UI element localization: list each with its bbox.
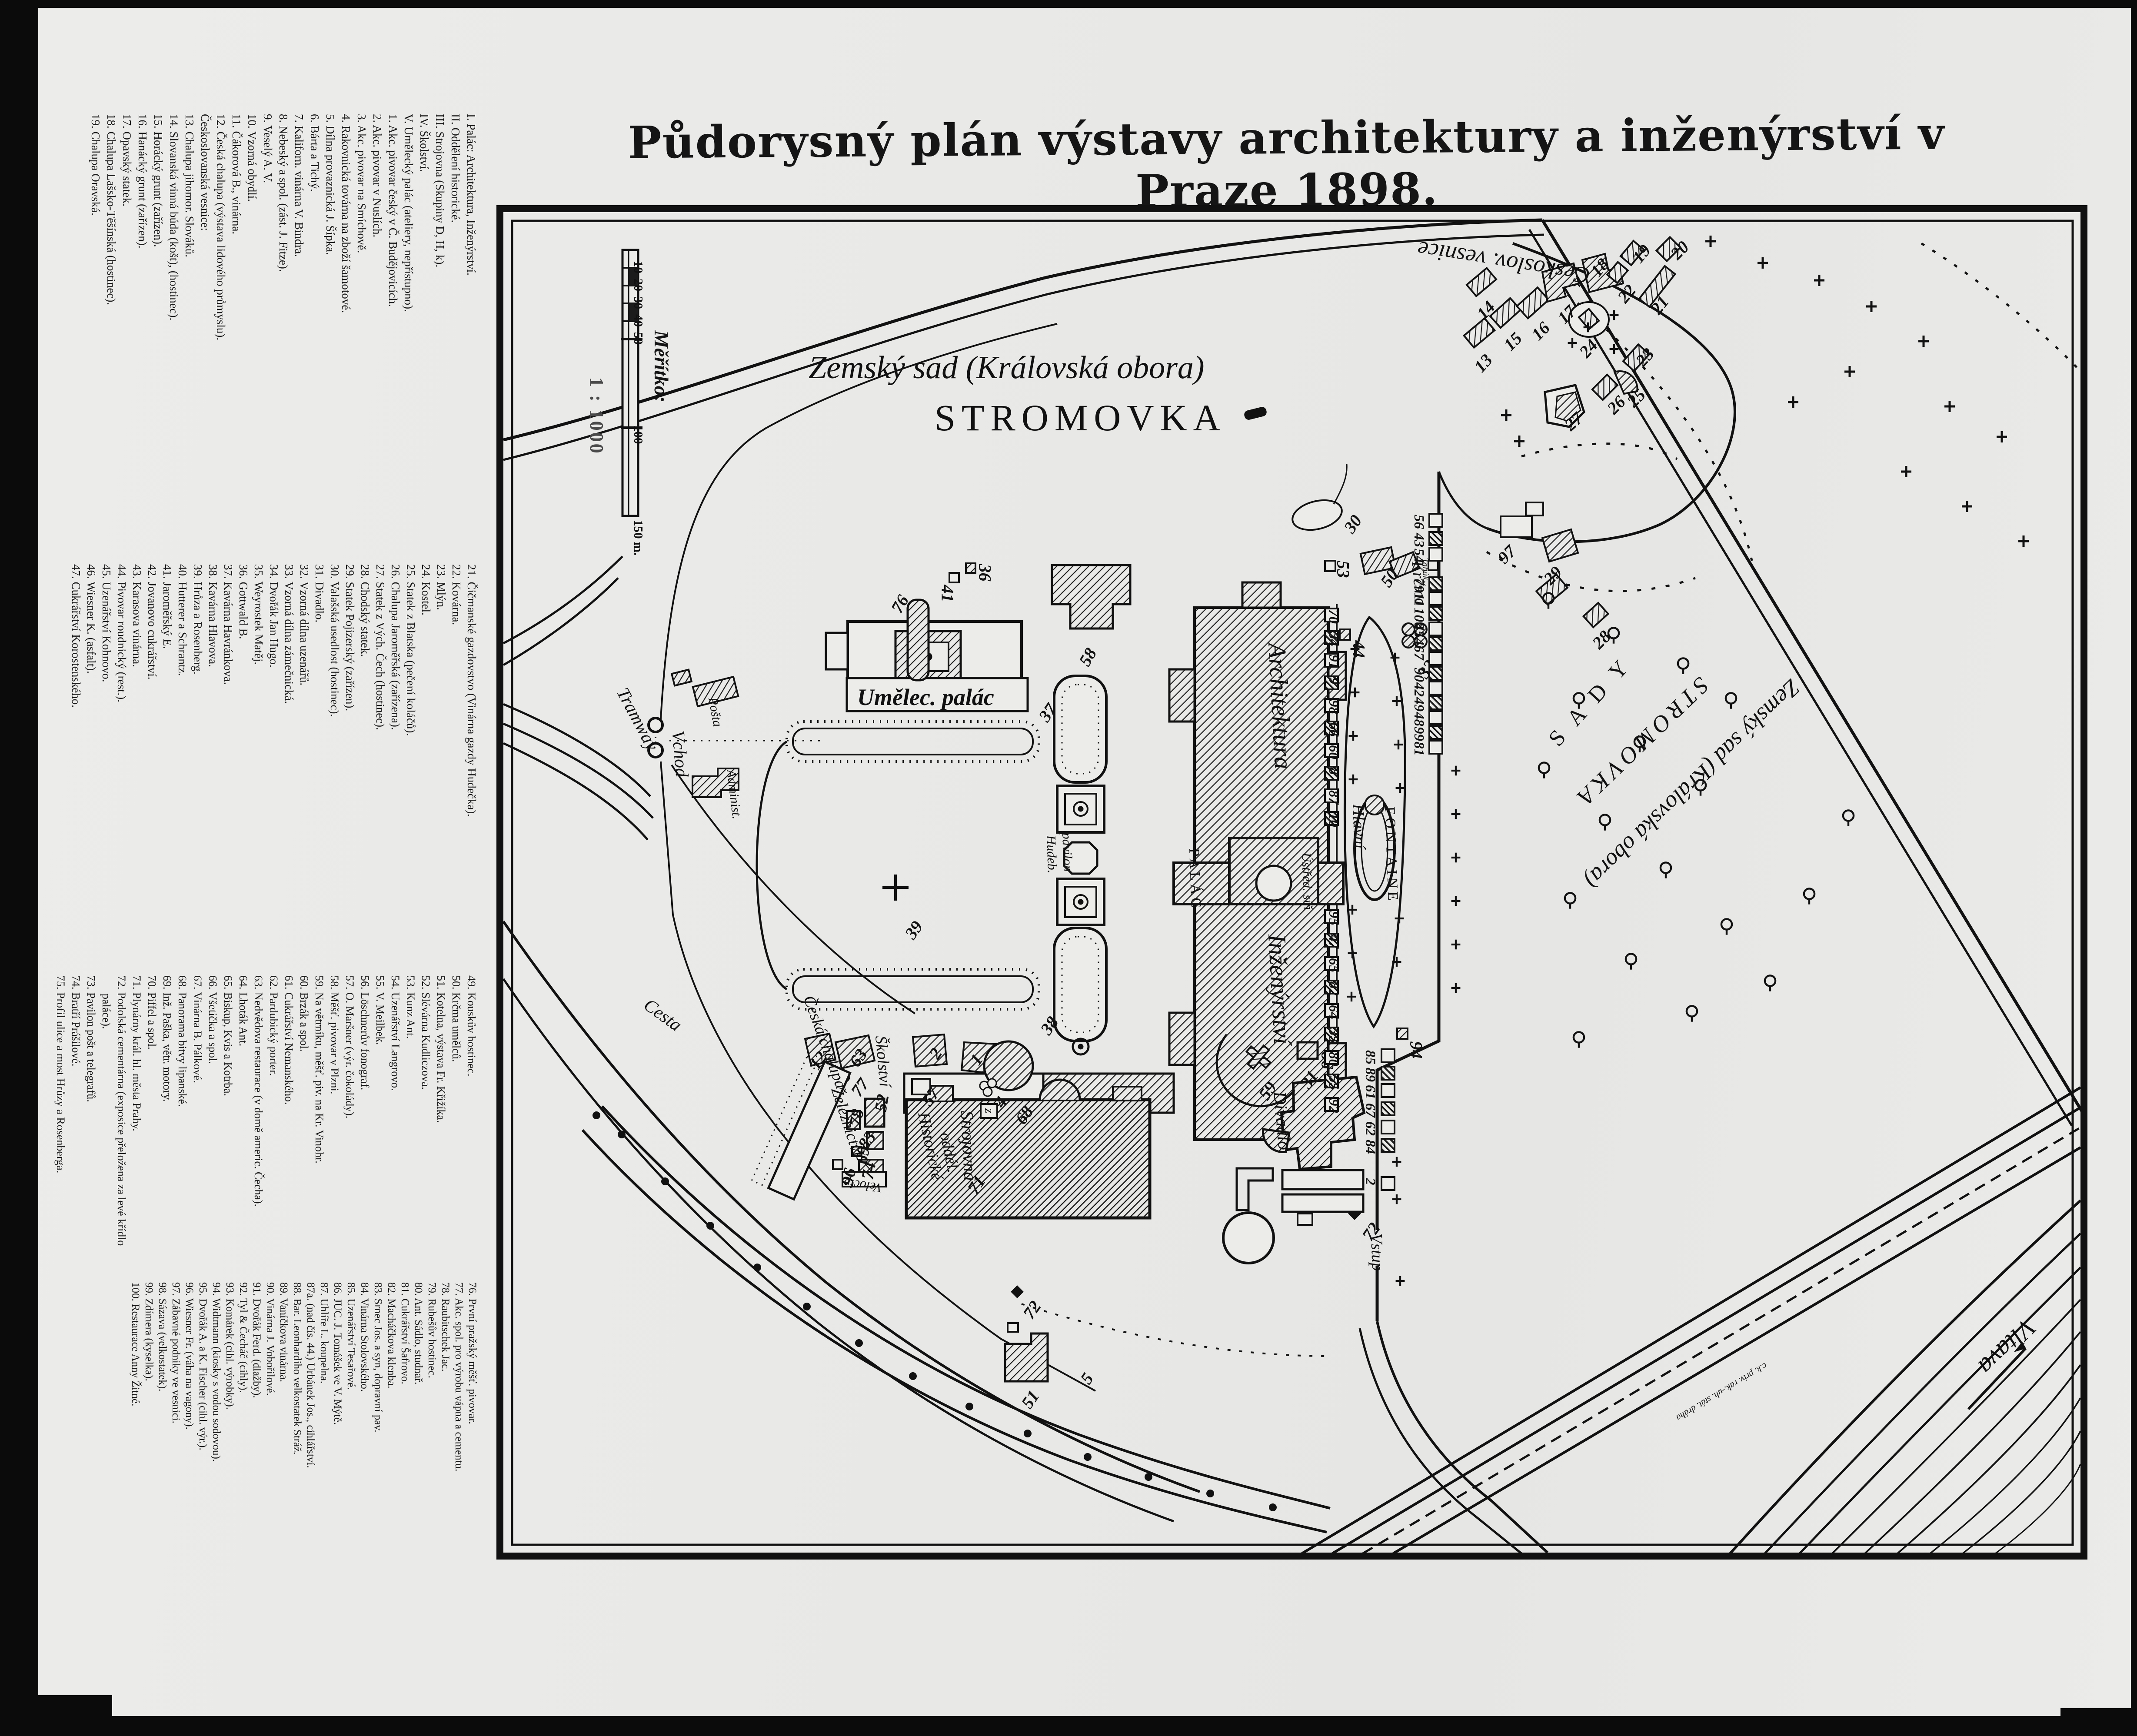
scale-tick: 30	[631, 296, 645, 309]
building-number: 94	[1406, 1041, 1427, 1059]
kiosk: 91	[1324, 653, 1339, 668]
legend-item: 68. Panorama bitvy lipanské.	[175, 975, 190, 1275]
legend-item: 14. Slovanská vinná búda (košt), (hostin…	[166, 114, 182, 562]
scale-title: Měřítko:	[650, 330, 673, 402]
legend-item: 93. Komárek (cihl. výrobky).	[223, 1282, 236, 1508]
kiosk: 48	[1428, 710, 1443, 725]
legend-item: 71. Plynárny král. hl. města Prahy.	[129, 975, 144, 1275]
legend-item: 5. Dílna provaznická J. Šípka.	[323, 114, 338, 562]
legend-item: 29. Statek Pojizerský (zařízen).	[342, 564, 357, 938]
legend-item: 79. Rubešův hostinec.	[425, 1282, 439, 1508]
legend-item: 34. Dvořák Jan Hugo.	[266, 564, 281, 938]
kiosk: 87	[1324, 788, 1339, 803]
legend-item: 67. Vinárna B. Pálkové.	[190, 975, 205, 1275]
legend-item: 88. Bar. Leonhardiho velkostatek Stráž.	[290, 1282, 304, 1508]
legend-item: 50. Krčma umělců.	[449, 975, 464, 1275]
legend-group-4: 76. První pražský měšť. pivovar.77. Akc.…	[48, 1282, 479, 1508]
legend-item: 49. Kouskův hostinec.	[464, 975, 479, 1275]
legend-item: 78. Raubitschek Jac.	[439, 1282, 452, 1508]
kiosk: 56	[1428, 513, 1443, 528]
building-number: 44	[1349, 641, 1369, 658]
kiosk: 7	[1428, 651, 1443, 666]
legend-item: 59. Na větrníku, měšť. piv. na Kr. Vinoh…	[312, 975, 327, 1275]
legend-item: 6. Bárta a Tichý.	[307, 114, 323, 562]
legend-item: 81. Cukrářství Šafrovo.	[398, 1282, 412, 1508]
kiosk: 34	[1324, 630, 1339, 645]
kiosk: 79	[1428, 576, 1443, 591]
legend-item: 77. Akc. spol. pro výrobu vápna a cement…	[452, 1282, 466, 1508]
legend-item: 3. Akc. pivovar na Smíchově.	[354, 114, 369, 562]
legend-item: I. Palác: Architektura, Inženýrství.	[463, 114, 479, 562]
legend-item: 26. Chalupa Jaroměřská (zařízena).	[388, 564, 403, 938]
kiosk: 35	[1324, 1027, 1339, 1041]
scale-tick: 20	[631, 279, 645, 291]
kiosk: 55	[1324, 1074, 1339, 1088]
legend-item: 73. Pavilon pošt a telegrafů.	[83, 975, 99, 1275]
legend-item: 11. Čákorová B., vinárna.	[229, 114, 244, 562]
legend-item: V. Umělecký palác (ateliery, nepřístupno…	[401, 114, 416, 562]
kiosk: 60	[1324, 743, 1339, 758]
kiosk: 47	[1324, 933, 1339, 948]
building-number: 78	[845, 1107, 868, 1128]
legend-item: 53. Kunz Ant.	[403, 975, 418, 1275]
legend-item: 87. Uhlíře L. koupelna.	[317, 1282, 331, 1508]
legend-item: 70. Piffel a spol.	[144, 975, 160, 1275]
scan-shadow	[2060, 1708, 2137, 1736]
legend-item: 86. JUC. J. Tomášek ve V. Mýtě.	[331, 1282, 344, 1508]
scale-tick: 50	[631, 332, 645, 345]
kiosk: 67	[1381, 1101, 1395, 1116]
legend-item: 99. Zdímera (kyselka).	[142, 1282, 156, 1508]
legend-item: 64. Lhoták Ant.	[236, 975, 251, 1275]
legend-item: 31. Divadlo.	[312, 564, 327, 938]
legend-item: 96. Wiesner Fr. (váha na vagony).	[183, 1282, 196, 1508]
building-number: 41	[938, 585, 958, 602]
kiosk: 43	[1428, 531, 1443, 546]
building-number: 53	[1333, 561, 1354, 578]
kiosk: 46	[1428, 636, 1443, 651]
kiosk: 70	[1324, 608, 1339, 622]
legend-item: 12. Česká chalupa (výstava lidového prům…	[213, 114, 229, 562]
legend-item: 69. Inž. Paška, větr. motory.	[160, 975, 175, 1275]
kiosk: 98	[1324, 698, 1339, 713]
legend-item: 94. Widtmann (kiosky s vodou sodovou).	[210, 1282, 223, 1508]
page-title: Půdorysný plán výstavy architektury a in…	[608, 107, 1965, 221]
legend-item: 55. V. Meilbek.	[373, 975, 388, 1275]
legend-item: Českoslovanská vesnice:	[197, 114, 213, 562]
building-number: 74	[857, 1161, 880, 1181]
legend-item: 84. Vinárna Stolovského.	[358, 1282, 371, 1508]
legend-item: 16. Hanácký grunt (zařízen).	[135, 114, 150, 562]
scale-tick: 150 m.	[631, 520, 645, 555]
legend-item: 75. Profil ulice a most Hrůzy a Rosenber…	[53, 975, 68, 1275]
legend-item: 92. Tyl & Čecháč (cihly).	[236, 1282, 250, 1508]
legend-item: 87a. (nad čís. 44.) Urbánek Jos., cihlář…	[304, 1282, 317, 1508]
legend-item: 45. Uzenářství Kohnovo.	[99, 564, 114, 938]
legend-item: 76. První pražský měšť. pivovar.	[466, 1282, 479, 1508]
kiosk: 11	[1428, 591, 1443, 606]
legend-item: 1. Akc. pivovar český v Č. Budějovicích.	[385, 114, 401, 562]
legend-item: 10. Vzorná obydlí.	[244, 114, 260, 562]
building-number: 96	[837, 1167, 860, 1187]
legend-item: 97. Zábavné podniky ve vesnici.	[169, 1282, 183, 1508]
building-number: 36	[975, 564, 995, 582]
legend-item: 100. Restaurace Anny Žitné.	[129, 1282, 142, 1508]
legend-item: 8. Nebeský a spol. (zást. J. Fitze).	[276, 114, 291, 562]
kiosk: 95	[1324, 909, 1339, 924]
legend-item: 25. Statek z Blatska (pečení koláčů).	[403, 564, 418, 938]
legend-item: 85. Uzenářství Tesařové.	[344, 1282, 358, 1508]
legend-item: 39. Hrůza a Rosenberg.	[190, 564, 205, 938]
scan-shadow	[38, 1695, 112, 1736]
legend-item: 72. Podolská cementárna (exposice přelož…	[99, 975, 129, 1275]
legend-item: 24. Kostel.	[418, 564, 433, 938]
scale-ratio: 1 : 1000	[586, 377, 608, 455]
kiosk: 99	[1428, 725, 1443, 740]
legend-item: 89. Vaníčkova vinárna.	[277, 1282, 290, 1508]
kiosk: 64	[1324, 1003, 1339, 1018]
legend-item: 43. Karasova vinárna.	[129, 564, 144, 938]
legend-item: 21. Čičmanské gazdovstvo (Vinárna gazdy …	[464, 564, 479, 938]
kiosk: 62	[1381, 1120, 1395, 1134]
kiosk: 49	[1428, 695, 1443, 710]
legend-item: 18. Chalupa Lašsko-Těšínská (hostinec).	[103, 114, 119, 562]
legend-item: 38. Kavárna Hlavova.	[205, 564, 220, 938]
legend-item: 30. Valašská usedlost (hostinec).	[327, 564, 342, 938]
legend-item: 57. O. Maršner (výr. čokolády).	[342, 975, 357, 1275]
legend-item: 17. Opavský statek.	[119, 114, 135, 562]
legend-item: 63. Nedvědova restaurace (v domě americ.…	[251, 975, 266, 1275]
legend-item: 82. Macháčkova klenba.	[385, 1282, 398, 1508]
legend-item: III. Strojovna (Skupiny D, H, k).	[432, 114, 448, 562]
legend-item: IV. Školství.	[416, 114, 432, 562]
legend-item: 65. Biskup, Kvis a Kotrba.	[220, 975, 236, 1275]
legend-item: 23. Mlýn.	[433, 564, 449, 938]
legend-group-1: I. Palác: Architektura, Inženýrství.II. …	[77, 114, 479, 562]
kiosk: 100	[1428, 606, 1443, 621]
legend-item: 19. Chalupa Oravská.	[88, 114, 103, 562]
building-number: 52	[870, 1093, 893, 1114]
legend-item: 36. Gottwald B.	[236, 564, 251, 938]
legend-item: 33. Vzorná dílna zámečnická.	[281, 564, 296, 938]
legend-item: 66. Všetička a spol.	[205, 975, 220, 1275]
legend-item: 52. Slévárna Kudliczova.	[418, 975, 433, 1275]
kiosk: 9	[1324, 675, 1339, 690]
kiosk: 45	[1428, 622, 1443, 636]
legend-item: 51. Kotelna, výstava Fr. Křižíka.	[433, 975, 449, 1275]
legend-item: 47. Cukrářství Korostenského.	[68, 564, 83, 938]
legend-item: 60. Brzák a spol.	[296, 975, 312, 1275]
kiosk: 92	[1324, 1097, 1339, 1112]
legend-item: 4. Rakovnická továrna na zboží šamotové.	[338, 114, 354, 562]
kiosk: 80	[1324, 1050, 1339, 1065]
scanned-map-page: Půdorysný plán výstavy architektury a in…	[0, 0, 2137, 1736]
legend-item: 7. Kaliforn. vinárna V. Bindra.	[291, 114, 307, 562]
legend-item: 2. Akc. pivovar v Nuslích.	[369, 114, 385, 562]
kiosk: 82	[1324, 980, 1339, 994]
kiosk: 61	[1381, 1083, 1395, 1098]
legend-item: 44. Pivovar roudnický (rest.).	[114, 564, 129, 938]
legend-item: 90. Vinárna J. Vobořilové.	[263, 1282, 277, 1508]
legend-item: 56. Löschnerův fonograf.	[357, 975, 373, 1275]
legend-item: 91. Dvořák Ferd. (dlažby).	[250, 1282, 263, 1508]
legend-item: 58. Měšť. pivovar v Plzni.	[327, 975, 342, 1275]
legend-item: 54. Uzenářství Langrovo.	[388, 975, 403, 1275]
legend-item: 98. Sázava (velkostatek).	[156, 1282, 169, 1508]
legend-group-3: 49. Kouskův hostinec.50. Krčma umělců.51…	[51, 975, 479, 1275]
kiosk: 8	[1324, 766, 1339, 781]
scale-tick: 10	[631, 261, 645, 273]
legend-item: 83. Srnec Jos. a syn, dopravní pav.	[371, 1282, 385, 1508]
legend-item: 74. Bratří Prášilové.	[68, 975, 83, 1275]
legend-item: 40. Hutterer a Schrantz.	[175, 564, 190, 938]
kiosk: 10	[1324, 811, 1339, 826]
legend-item: 9. Veselý A. V.	[260, 114, 276, 562]
legend-item: 95. Dvořák A. a K. Fischer (cihl. výr.).	[196, 1282, 210, 1508]
legend-item: 35. Weyrostek Matěj.	[251, 564, 266, 938]
legend-item: 13. Chalupa jihomor. Slováků.	[182, 114, 197, 562]
kiosk: 84	[1381, 1138, 1395, 1153]
legend-item: 37. Kavárna Havránkova.	[220, 564, 236, 938]
legend-item: 80. Ant. Sádlo, studnař.	[412, 1282, 425, 1508]
kiosk: 2	[1381, 1176, 1395, 1191]
legend-item: 28. Chodský statek.	[357, 564, 373, 938]
legend-group-2: 21. Čičmanské gazdovstvo (Vinárna gazdy …	[51, 564, 479, 938]
kiosk: 85	[1381, 1048, 1395, 1063]
legend-item: II. Oddělení historické.	[448, 114, 463, 562]
scale-tick: 100	[631, 425, 645, 444]
scale-tick: 40	[631, 314, 645, 327]
kiosk: 81	[1428, 740, 1443, 755]
kiosk: 65	[1324, 956, 1339, 971]
legend-item: 61. Cukrářství Nemanského.	[281, 975, 296, 1275]
legend-item: 46. Wiesner K. (asfalt).	[83, 564, 99, 938]
kiosk: 90	[1428, 666, 1443, 681]
kiosk: 54	[1428, 547, 1443, 562]
legend-item: 32. Vzorná dílna uzenářů.	[296, 564, 312, 938]
legend-item: 42. Jovanovo cukrářství.	[144, 564, 160, 938]
legend-item: 22. Kovárna.	[449, 564, 464, 938]
kiosk: 89	[1381, 1066, 1395, 1081]
legend-item: 41. Jaroměřský E.	[160, 564, 175, 938]
legend-item: 27. Statek z Vých. Čech (hostinec).	[373, 564, 388, 938]
legend-item: 62. Pardubický porter.	[266, 975, 281, 1275]
legend-item: 15. Horácký grunt (zařízen).	[150, 114, 166, 562]
kiosk: 66	[1324, 721, 1339, 735]
kiosk: 42	[1428, 681, 1443, 695]
